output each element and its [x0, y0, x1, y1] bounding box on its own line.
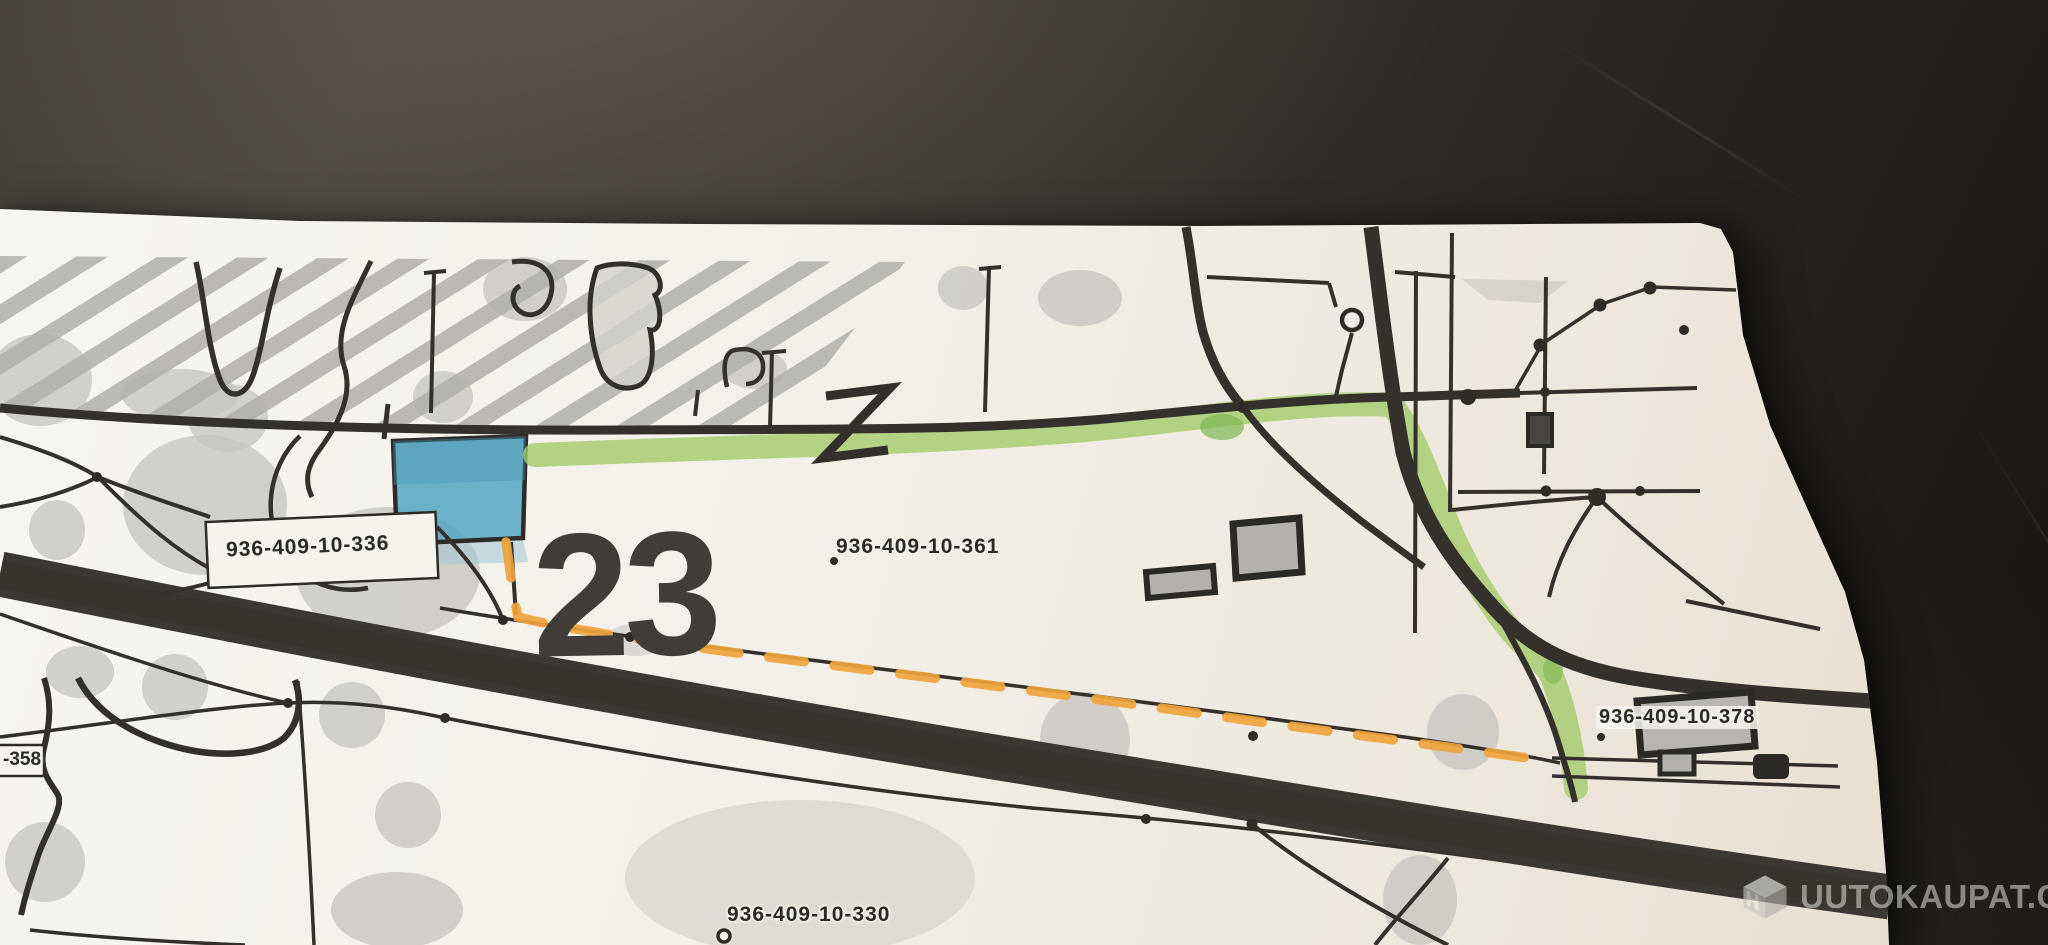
building: [1528, 414, 1552, 446]
huutokaupat-logo-icon: H: [1740, 872, 1790, 922]
building: [1146, 566, 1215, 598]
parcel-label-330: 936-409-10-330: [727, 903, 890, 927]
paper-shadow: 23 936-409-10-336 936-409-10-361 936-409…: [0, 0, 2048, 945]
north-road: [1186, 227, 1243, 407]
parcel-label-358-partial: -358: [3, 749, 41, 771]
pond-outline: [590, 264, 660, 388]
building: [1233, 518, 1302, 578]
well-circle: [1342, 310, 1362, 330]
cadastral-map: [0, 0, 2048, 945]
photo-of-map-on-table: 23 936-409-10-336 936-409-10-361 936-409…: [0, 0, 2048, 945]
building: [1660, 752, 1694, 774]
parcel-label-361: 936-409-10-361: [836, 535, 999, 559]
parcel-label-378: 936-409-10-378: [1596, 706, 1758, 729]
map-paper-sheet: 23 936-409-10-336 936-409-10-361 936-409…: [0, 0, 2048, 945]
building: [1753, 754, 1789, 779]
huutokaupat-watermark: H UUTOKAUPAT.COM: [1740, 872, 2048, 922]
plot-number-23: 23: [530, 492, 717, 697]
watermark-text: UUTOKAUPAT.COM: [1800, 878, 2048, 916]
marker-boundary: [1515, 287, 1736, 391]
